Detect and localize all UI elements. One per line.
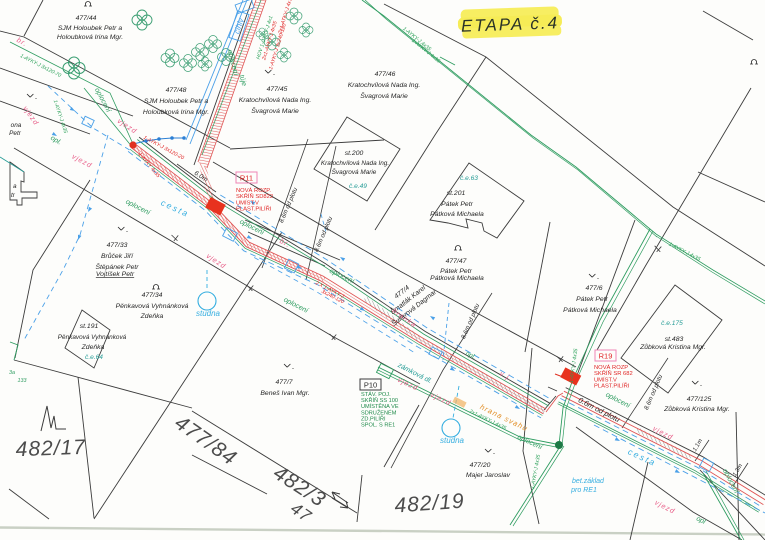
svg-text:UMÍST.V: UMÍST.V	[594, 376, 617, 383]
svg-text:477/44: 477/44	[76, 15, 97, 22]
svg-text:Holoubková Irina Mgr.: Holoubková Irina Mgr.	[57, 34, 123, 41]
svg-text:133: 133	[18, 378, 27, 384]
svg-text:ZD.PILÍŘI: ZD.PILÍŘI	[361, 414, 386, 422]
svg-text:477/6: 477/6	[585, 285, 602, 292]
svg-text:Švagrová Marie: Švagrová Marie	[360, 91, 408, 100]
svg-text:Pěnkavová Vyhnánková: Pěnkavová Vyhnánková	[116, 303, 189, 310]
svg-text:477/48: 477/48	[166, 87, 187, 94]
svg-text:Petr: Petr	[9, 130, 22, 137]
svg-text:P10: P10	[364, 381, 377, 390]
svg-text:Kratochvílová Nada Ing.: Kratochvílová Nada Ing.	[321, 160, 389, 167]
svg-text:č.e.175: č.e.175	[661, 320, 683, 327]
svg-text:PLAST.PILÍŘI: PLAST.PILÍŘI	[594, 382, 630, 390]
svg-text:Beneš Ivan Mgr.: Beneš Ivan Mgr.	[260, 390, 309, 397]
svg-text:a: a	[13, 183, 17, 190]
svg-text:pro RE1: pro RE1	[570, 487, 597, 494]
svg-text:482/19: 482/19	[394, 490, 466, 518]
svg-text:NOVÁ ROZP.: NOVÁ ROZP.	[236, 187, 271, 194]
svg-text:SKŘÍŇ SS 100: SKŘÍŇ SS 100	[361, 396, 398, 404]
svg-text:st.191: st.191	[80, 323, 99, 330]
svg-text:studna: studna	[196, 309, 221, 318]
svg-text:R11: R11	[240, 174, 253, 183]
svg-text:STÁV. POJ.: STÁV. POJ.	[361, 391, 391, 398]
svg-text:SJM Holoubek Petr a: SJM Holoubek Petr a	[58, 25, 122, 32]
svg-text:Pátková Michaela: Pátková Michaela	[563, 307, 617, 314]
svg-text:SJM Holoubek Petr a: SJM Holoubek Petr a	[144, 98, 208, 105]
svg-text:Pěnkavová Vyhnánková: Pěnkavová Vyhnánková	[58, 334, 127, 341]
svg-text:477/45: 477/45	[267, 86, 288, 93]
svg-text:Holoubková Irina Mgr.: Holoubková Irina Mgr.	[143, 109, 209, 116]
svg-text:482/17: 482/17	[15, 436, 86, 461]
svg-text:SPOL. S RE1: SPOL. S RE1	[361, 423, 395, 429]
svg-text:č.e.63: č.e.63	[460, 175, 478, 182]
svg-text:č.e.64: č.e.64	[85, 354, 103, 361]
svg-text:Majer Jaroslav: Majer Jaroslav	[466, 472, 511, 479]
svg-text:UMÍSTĚNA VE: UMÍSTĚNA VE	[361, 402, 399, 410]
svg-text:477/34: 477/34	[142, 292, 163, 299]
svg-text:Pátek Petr: Pátek Petr	[441, 201, 473, 208]
svg-text:SKŘÍŇ SR 682: SKŘÍŇ SR 682	[594, 369, 633, 377]
svg-text:UMÍST.V: UMÍST.V	[236, 199, 259, 206]
svg-text:Zůbková Kristina Mgr.: Zůbková Kristina Mgr.	[639, 343, 706, 351]
svg-text:st.201: st.201	[447, 190, 466, 197]
svg-text:Švagrová Marie: Švagrová Marie	[332, 167, 377, 176]
svg-text:477/46: 477/46	[375, 71, 396, 78]
svg-text:Pátek Petr: Pátek Petr	[576, 296, 608, 303]
svg-text:477/125: 477/125	[687, 396, 712, 403]
svg-text:bet.základ: bet.základ	[572, 478, 605, 485]
svg-text:SKŘÍŇ SD822: SKŘÍŇ SD822	[236, 192, 273, 200]
svg-text:ona: ona	[11, 122, 22, 129]
svg-text:Pátková Michaela: Pátková Michaela	[430, 211, 484, 218]
svg-text:č.e.49: č.e.49	[349, 183, 367, 190]
svg-text:R19: R19	[599, 352, 613, 361]
svg-text:st.483: st.483	[665, 336, 684, 343]
svg-text:Vojtíšek Petr: Vojtíšek Petr	[96, 271, 135, 278]
svg-text:477/7: 477/7	[275, 379, 292, 386]
svg-text:PLAST.PILÍŘI: PLAST.PILÍŘI	[236, 205, 272, 213]
svg-text:477/20: 477/20	[470, 462, 491, 469]
svg-text:Brůček Jiří: Brůček Jiří	[101, 252, 134, 260]
svg-text:Švagrová Marie: Švagrová Marie	[251, 106, 299, 115]
svg-text:st.200: st.200	[345, 150, 364, 157]
svg-text:Štěpánek Petr: Štěpánek Petr	[95, 262, 139, 271]
svg-text:Zdeňka: Zdeňka	[81, 344, 105, 351]
svg-text:studna: studna	[440, 436, 465, 445]
svg-text:477/47: 477/47	[446, 258, 467, 265]
svg-text:Kratochvílová Nada Ing.: Kratochvílová Nada Ing.	[239, 97, 312, 104]
svg-text:ETAPA č.4: ETAPA č.4	[461, 13, 560, 35]
svg-text:Zůbková Kristina Mgr.: Zůbková Kristina Mgr.	[663, 405, 730, 413]
svg-text:Pátek Petr: Pátek Petr	[440, 268, 472, 275]
svg-text:Pátková Michaela: Pátková Michaela	[430, 275, 484, 282]
svg-text:3a: 3a	[9, 370, 15, 376]
svg-text:SDRUŽENÉM: SDRUŽENÉM	[361, 408, 397, 416]
svg-text:Kratochvílová Nada Ing.: Kratochvílová Nada Ing.	[348, 82, 421, 89]
svg-text:477/33: 477/33	[107, 242, 128, 249]
svg-text:NOVÁ ROZP: NOVÁ ROZP	[594, 364, 628, 371]
svg-text:Zdeňka: Zdeňka	[140, 313, 164, 320]
